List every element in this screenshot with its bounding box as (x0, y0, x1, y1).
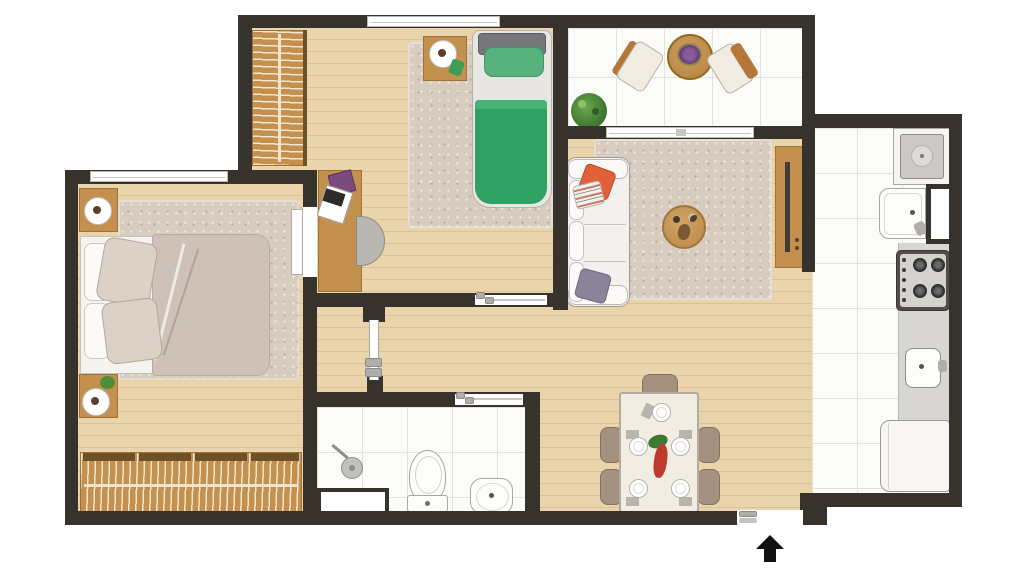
wardrobe-shelf (139, 453, 191, 461)
bed-duvet-green (475, 100, 547, 204)
decor-dot (673, 216, 680, 223)
master-door-panel (291, 209, 303, 275)
burner-icon (931, 284, 945, 298)
margin (0, 0, 1024, 15)
entry-door-leaf (739, 511, 757, 517)
window-frame-line (93, 177, 225, 178)
door-handle (476, 292, 485, 299)
door-handle (465, 397, 474, 404)
sofa-seam (584, 224, 626, 225)
stove-knob (902, 278, 906, 282)
master-door-opening (303, 207, 317, 277)
lamp-center (93, 206, 101, 214)
pocket-door-handle (365, 368, 382, 377)
pillow (100, 297, 163, 365)
plate (652, 403, 671, 422)
entrance-arrow-stem (764, 548, 776, 562)
bedroom2-window (367, 16, 500, 27)
wall-living-kitchen-divider (802, 15, 815, 272)
burner-icon (913, 284, 927, 298)
stove-knob (902, 258, 906, 262)
refrigerator (880, 420, 950, 492)
stove-knob (902, 268, 906, 272)
wardrobe-shelf (83, 453, 135, 461)
door-handle (485, 297, 494, 304)
wall-bedroom2-right (553, 15, 568, 310)
window-frame-line (370, 22, 497, 23)
burner-icon (913, 258, 927, 272)
faucet-icon (938, 360, 947, 372)
wall-kitchen-top (802, 114, 962, 128)
potted-plant-icon (571, 93, 607, 129)
flower-pot-icon (679, 45, 700, 64)
toilet-button (425, 501, 430, 506)
wall-bathroom-right (525, 392, 540, 512)
cabinet-knob (795, 246, 799, 250)
door-track (470, 398, 522, 400)
balcony-slider-handle (676, 129, 686, 136)
plant-leaf (592, 108, 599, 115)
toilet-seat (415, 456, 442, 494)
tank-drain-dot (920, 154, 924, 158)
wall-left-outer (65, 170, 78, 525)
napkin (679, 497, 692, 506)
wardrobe-shelf (251, 453, 299, 461)
sink-drain (489, 493, 494, 498)
entry-door-leaf (739, 518, 757, 523)
wardrobe-rail (84, 484, 298, 487)
burner-icon (931, 258, 945, 272)
wall-right-outer (949, 114, 962, 507)
wardrobe-edge (303, 30, 307, 166)
sofa-seam (584, 261, 626, 262)
bed-pillow (484, 47, 544, 77)
floor-plan (0, 0, 1024, 576)
margin (0, 15, 240, 172)
dining-chair (697, 469, 720, 505)
shower-head-center (349, 465, 355, 471)
plate (671, 437, 690, 456)
wall-top (238, 15, 815, 28)
plate (629, 437, 648, 456)
tv-icon (785, 162, 790, 252)
pocket-door-handle (365, 358, 382, 367)
sofa-back-cushion (569, 221, 584, 261)
duvet-top-fold (475, 100, 547, 109)
plant-leaf (578, 100, 586, 108)
wall-entry-step (800, 493, 827, 525)
wardrobe-rail (278, 34, 281, 162)
wall-bedroom2-left (238, 15, 252, 184)
wall-kitchen-bottom (815, 493, 962, 507)
master-window (90, 171, 228, 182)
plate (629, 479, 648, 498)
lamp-center (91, 397, 99, 405)
door-track (490, 299, 545, 301)
wall-bottom-outer (65, 511, 737, 525)
door-handle (456, 392, 465, 399)
plant-decor-icon (100, 376, 115, 389)
lamp-center (438, 49, 446, 57)
margin (813, 507, 1024, 525)
entrance-arrow-icon (756, 535, 784, 549)
refrigerator-door-line (888, 423, 889, 489)
cabinet-knob (795, 238, 799, 242)
margin (0, 525, 1024, 576)
wardrobe-with-hangers (80, 452, 302, 512)
decor-dot (688, 213, 697, 222)
counter-sink-drain (919, 364, 924, 369)
dining-chair (697, 427, 720, 463)
stove-knob (902, 288, 906, 292)
plate (671, 479, 690, 498)
service-window-glass (931, 189, 949, 239)
stove-knob (902, 298, 906, 302)
faucet-dot (910, 210, 915, 215)
wardrobe-shelf (195, 453, 247, 461)
napkin (626, 497, 639, 506)
margin (815, 15, 1024, 114)
